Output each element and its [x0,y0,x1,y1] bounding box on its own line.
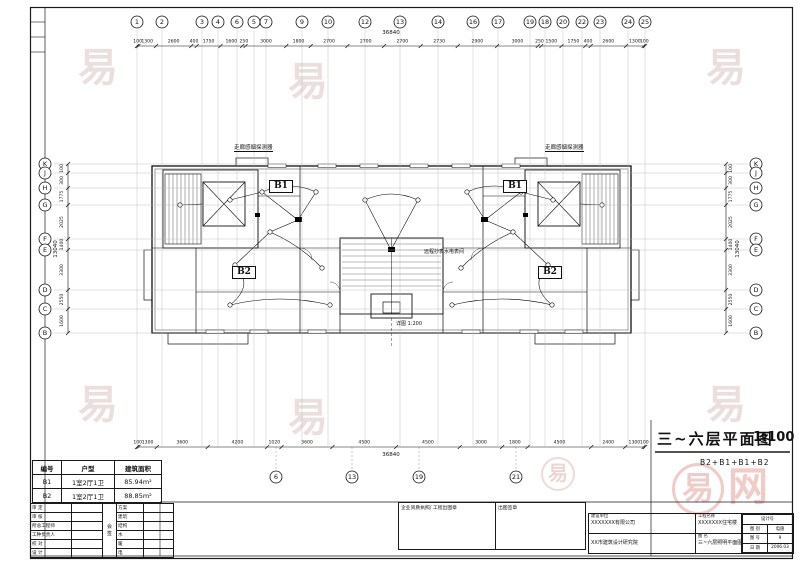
title-block-meta-col: 设计号 图 别 电施 图 号 9 日 期 2006.03 [742,514,793,553]
sign-blank [72,549,103,558]
dimension-total: 36840 [382,452,400,458]
dimension-text: 1300 [141,39,153,45]
dimension-text: 100 [640,440,649,446]
plan-note: 远程抄表水电表间 [424,248,464,255]
dimension-text: 3600 [301,440,313,446]
dimension-text: 3000 [260,39,272,45]
sign-label: 水 [117,531,144,540]
dimension-text: 2700 [396,39,408,45]
dimension-text: 2550 [59,294,65,306]
stamp-cell-license: 企业资质执照/ 工程出图章 [398,502,496,550]
dimension-text: 400 [584,39,593,45]
grid-bubble-label: D [42,286,47,294]
dimension-text: 1800 [509,440,521,446]
unit-label: B1 [503,180,527,193]
dimension-total: 13040 [735,240,741,258]
dimension-text: 300 [728,176,734,185]
project-value: XXXXXXX住宅楼 [698,520,739,527]
grid-bubble-label: F [754,235,758,243]
electrical-wiring [178,186,604,307]
dimension-text: 2600 [168,39,180,45]
sign-label: 电 [117,549,144,558]
grid-bubble-label: H [43,184,48,192]
sign-blank [144,549,174,558]
sheetname-value: 三~六层照明平面图 [698,540,739,547]
dimension-text: 1400 [728,239,734,251]
grid-bubble-label: 3 [200,18,204,26]
dimension-text: 1500 [546,39,558,45]
plan-note: 详图 1:200 [396,320,422,327]
sign-label: 设 计 [31,549,72,558]
grid-bubble-label: 5 [252,18,256,26]
signature-table: 审 定 会 签 方案 审 核 建筑 所总工程师 结构 工种负责人 水 校 对 暖… [30,503,174,558]
sign-label: 方案 [117,504,144,513]
stamp-label: 出图签章 [496,503,585,512]
dimension-text: 100 [728,164,734,173]
sign-blank [144,540,174,549]
design-no-label: 设计号 [743,515,793,525]
dimension-text: 2025 [728,216,734,228]
grid-bubble-label: 7 [264,18,268,26]
grid-bubble-label: G [42,201,47,209]
dimension-text: 2700 [323,39,335,45]
grid-bubble-label: B [754,329,758,337]
sign-countersign-char: 会 [107,524,112,530]
plan-note: 走廊感烟探测器 [545,143,584,152]
dimension-text: 2900 [472,39,484,45]
sign-label: 审 定 [31,504,72,513]
title-block-project-col: 工程名称 XXXXXXX住宅楼 图 名 三~六层照明平面图 [696,514,742,553]
legend-header: 编号 [33,461,62,475]
sign-countersign: 会 签 [103,504,117,558]
dimension-text: 250 [239,39,248,45]
dimension-text: 2700 [360,39,372,45]
dimension-text: 100 [640,39,649,45]
grid-bubble-label: E [754,246,758,254]
unit-label: B2 [538,266,562,279]
dimension-text: 1300 [629,440,641,446]
dimension-text: 3300 [59,264,65,276]
grid-bubble-label: 25 [641,18,649,26]
grid-bubble-label: C [754,305,759,313]
legend-header: 户型 [62,461,115,475]
dimension-text: 4500 [422,440,434,446]
stamp-cell-seal: 出图签章 [495,502,586,550]
dimension-total: 13040 [53,240,59,258]
dimension-text: 4500 [554,440,566,446]
grid-bubble-label: 18 [541,18,549,26]
dimension-total: 36840 [382,30,400,36]
dimension-text: 1800 [293,39,305,45]
dimension-text: 3300 [728,264,734,276]
dimension-text: 3000 [512,39,524,45]
grid-bubble-label: 22 [578,18,586,26]
legend-header: 建筑面积 [115,461,162,475]
stamp-label: 企业资质执照/ 工程出图章 [399,503,495,512]
legend-cell: 1室2厅1卫 [62,489,115,503]
grid-bubble-label: C [43,305,48,313]
sign-label: 建筑 [117,513,144,522]
grid-bubble-label: 14 [434,18,442,26]
cat-label: 图 别 [743,524,768,534]
legend-cell: B1 [33,475,62,489]
grid-bubble-label: G [753,201,758,209]
project-cell: 工程名称 XXXXXXX住宅楼 [696,514,741,534]
dimension-text: 4200 [232,440,244,446]
unit-label: B2 [232,266,256,279]
drawing-scale: 1:100 [753,430,794,445]
grid-bubble-label: 16 [469,18,477,26]
grid-bubble-label: B [43,329,47,337]
grid-bubble-label: 6 [235,18,239,26]
legend-cell: B2 [33,489,62,503]
dimension-text: 3000 [475,440,487,446]
cat-value: 电施 [768,524,793,534]
meta-table: 设计号 图 别 电施 图 号 9 日 期 2006.03 [742,514,793,553]
title-block: 建设单位 XXXXXXX有限公司 XX市建筑设计研究院 工程名称 XXXXXXX… [588,513,794,554]
plan-note: 走廊感烟探测器 [234,143,273,152]
sheetname-cell: 图 名 三~六层照明平面图 [696,534,741,553]
grid-bubble-label: D [753,286,758,294]
date-label: 日 期 [743,543,768,553]
grid-bubble-label: 10 [324,18,332,26]
dimension-text: 250 [535,39,544,45]
dimension-text: 2400 [602,440,614,446]
no-value: 9 [768,534,793,544]
dimension-text: 400 [190,39,199,45]
owner-cell: 建设单位 XXXXXXX有限公司 [589,514,695,534]
sign-label: 暖 [117,540,144,549]
sign-blank [72,504,103,513]
dimension-text: 1600 [728,315,734,327]
dimension-text: 100 [59,164,65,173]
sign-blank [144,513,174,522]
sign-label: 审 核 [31,513,72,522]
dimension-text: 3600 [176,440,188,446]
sign-blank [72,540,103,549]
grid-bubble-label: 17 [494,18,502,26]
grid-bubble-label: 20 [559,18,567,26]
sign-label: 工种负责人 [31,531,72,540]
dimension-text: 2600 [603,39,615,45]
grid-bubble-label: 19 [526,18,534,26]
grid-bubble-label: 1 [135,18,139,26]
dimension-text: 300 [59,176,65,185]
unit-label: B1 [269,180,293,193]
sign-label: 所总工程师 [31,522,72,531]
designer-value: XX市建筑设计研究院 [591,534,693,552]
sign-blank [72,531,103,540]
grid-bubble-label: F [43,235,47,243]
legend-row: B2 1室2厅1卫 88.85m² [33,489,162,503]
sign-blank [144,522,174,531]
grid-bubble-label: J [43,169,46,177]
grid-bubble-label: 4 [216,18,220,26]
legend-cell: 85.94m² [115,475,162,489]
grid-bubble-label: 13 [348,473,356,481]
owner-value: XXXXXXX有限公司 [591,520,693,527]
drawing-sheet: 易 易 易 易 易 易 易 易网 [0,0,800,567]
dimension-text: 1020 [268,440,280,446]
dimension-text: 1300 [142,440,154,446]
grid-bubble-label: 12 [361,18,369,26]
title-block-owner-col: 建设单位 XXXXXXX有限公司 XX市建筑设计研究院 [589,514,696,553]
designer-cell: XX市建筑设计研究院 [589,534,695,553]
grid-bubble-label: 19 [415,473,423,481]
dimension-text: 2550 [728,294,734,306]
dimension-text: 2730 [433,39,445,45]
grid-bubble-label: 13 [396,18,404,26]
grid-bubble-label: 21 [512,473,520,481]
grid-bubble-label: 9 [300,18,304,26]
dimension-text: 1400 [59,239,65,251]
grid-bubble-label: 2 [160,18,164,26]
dimension-text: 1775 [728,191,734,203]
sign-label: 校 对 [31,540,72,549]
sign-label: 结构 [117,522,144,531]
dimension-text: 1600 [59,315,65,327]
grid-bubble-label: J [754,169,757,177]
dimension-text: 1750 [203,39,215,45]
legend-cell: 88.85m² [115,489,162,503]
grid-bubble-label: H [754,184,759,192]
sign-blank [144,531,174,540]
grid-bubble-label: 23 [596,18,604,26]
date-value: 2006.03 [768,543,793,553]
grid-bubble-label: 6 [274,473,278,481]
grid-bubble-label: E [43,246,47,254]
no-label: 图 号 [743,534,768,544]
sign-blank [144,504,174,513]
sign-blank [72,513,103,522]
legend-row: B1 1室2厅1卫 85.94m² [33,475,162,489]
sign-countersign-char: 签 [107,531,112,537]
drawing-subtitle: B2+B1+B1+B2 [700,458,770,467]
dimension-text: 2025 [59,216,65,228]
unit-legend-table: 编号 户型 建筑面积 B1 1室2厅1卫 85.94m² B2 1室2厅1卫 8… [32,460,162,503]
dimension-text: 1775 [59,191,65,203]
legend-cell: 1室2厅1卫 [62,475,115,489]
sign-blank [72,522,103,531]
grid-bubble-label: 24 [624,18,632,26]
dimension-text: 1600 [225,39,237,45]
dimension-text: 1750 [568,39,580,45]
dimension-text: 4500 [358,440,370,446]
